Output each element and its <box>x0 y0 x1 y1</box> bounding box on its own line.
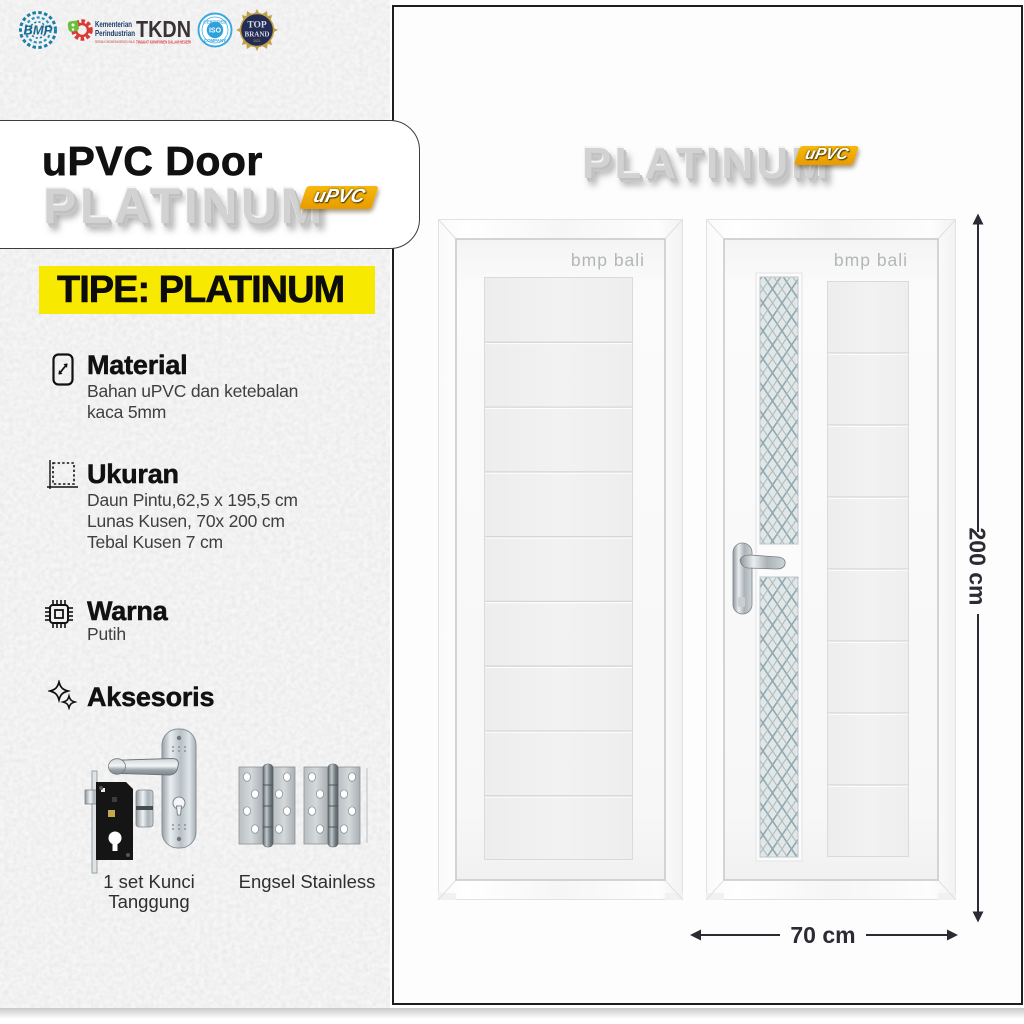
svg-text:TINGKAT KOMPONEN DALAM NEGERI: TINGKAT KOMPONEN DALAM NEGERI <box>136 40 191 45</box>
svg-text:BMP: BMP <box>24 23 53 38</box>
svg-text:bmp bali: bmp bali <box>571 250 645 270</box>
svg-text:2021: 2021 <box>253 39 260 43</box>
svg-text:Kementerian: Kementerian <box>95 20 132 29</box>
svg-text:BRAND: BRAND <box>245 31 270 39</box>
svg-text:bmp bali: bmp bali <box>834 250 908 270</box>
svg-text:COMPANY: COMPANY <box>204 38 226 43</box>
svg-text:ISO: ISO <box>209 28 222 35</box>
svg-text:TOP: TOP <box>247 21 267 31</box>
svg-text:REPUBLIK INDONESIA BERSATU MAJ: REPUBLIK INDONESIA BERSATU MAJU <box>95 39 135 44</box>
svg-text:CERTIFIED: CERTIFIED <box>203 19 226 24</box>
svg-text:TKDN: TKDN <box>136 16 191 42</box>
svg-text:Perindustrian: Perindustrian <box>95 29 135 38</box>
